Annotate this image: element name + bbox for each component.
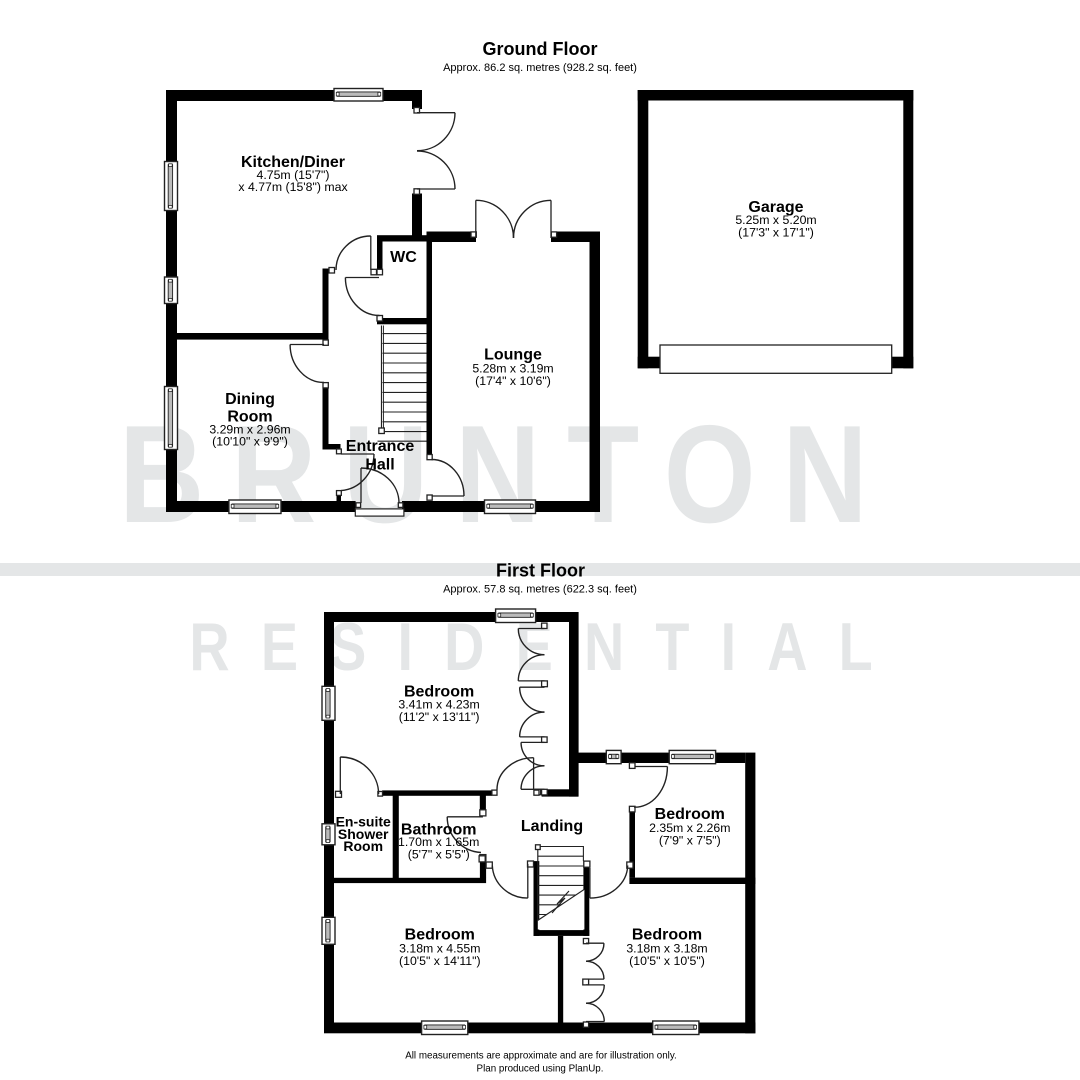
svg-text:First Floor: First Floor [496,560,585,580]
svg-text:Approx. 86.2 sq. metres (928.2: Approx. 86.2 sq. metres (928.2 sq. feet) [443,62,637,74]
svg-text:Approx. 57.8 sq. metres (622.3: Approx. 57.8 sq. metres (622.3 sq. feet) [443,583,637,595]
svg-text:Dining: Dining [225,391,275,408]
svg-text:(17'3" x 17'1"): (17'3" x 17'1") [738,225,814,239]
svg-text:(5'7" x 5'5"): (5'7" x 5'5") [408,847,470,861]
svg-text:WC: WC [390,249,417,266]
svg-text:Ground Floor: Ground Floor [483,39,598,59]
svg-text:(7'9" x 7'5"): (7'9" x 7'5") [659,834,721,848]
svg-text:All measurements are approxima: All measurements are approximate and are… [405,1051,677,1062]
svg-text:x 4.77m (15'8") max: x 4.77m (15'8") max [238,180,348,194]
svg-text:(10'5" x 14'11"): (10'5" x 14'11") [399,954,481,968]
svg-text:(10'10" x 9'9"): (10'10" x 9'9") [212,435,288,449]
svg-text:(10'5" x 10'5"): (10'5" x 10'5") [629,954,705,968]
svg-text:(17'4" x 10'6"): (17'4" x 10'6") [475,374,551,388]
svg-text:Hall: Hall [365,457,394,474]
svg-text:(11'2" x 13'11"): (11'2" x 13'11") [399,710,480,724]
svg-text:Plan produced using PlanUp.: Plan produced using PlanUp. [477,1063,604,1074]
svg-text:Entrance: Entrance [346,438,415,455]
svg-text:Landing: Landing [521,818,583,835]
svg-text:Room: Room [343,838,383,854]
